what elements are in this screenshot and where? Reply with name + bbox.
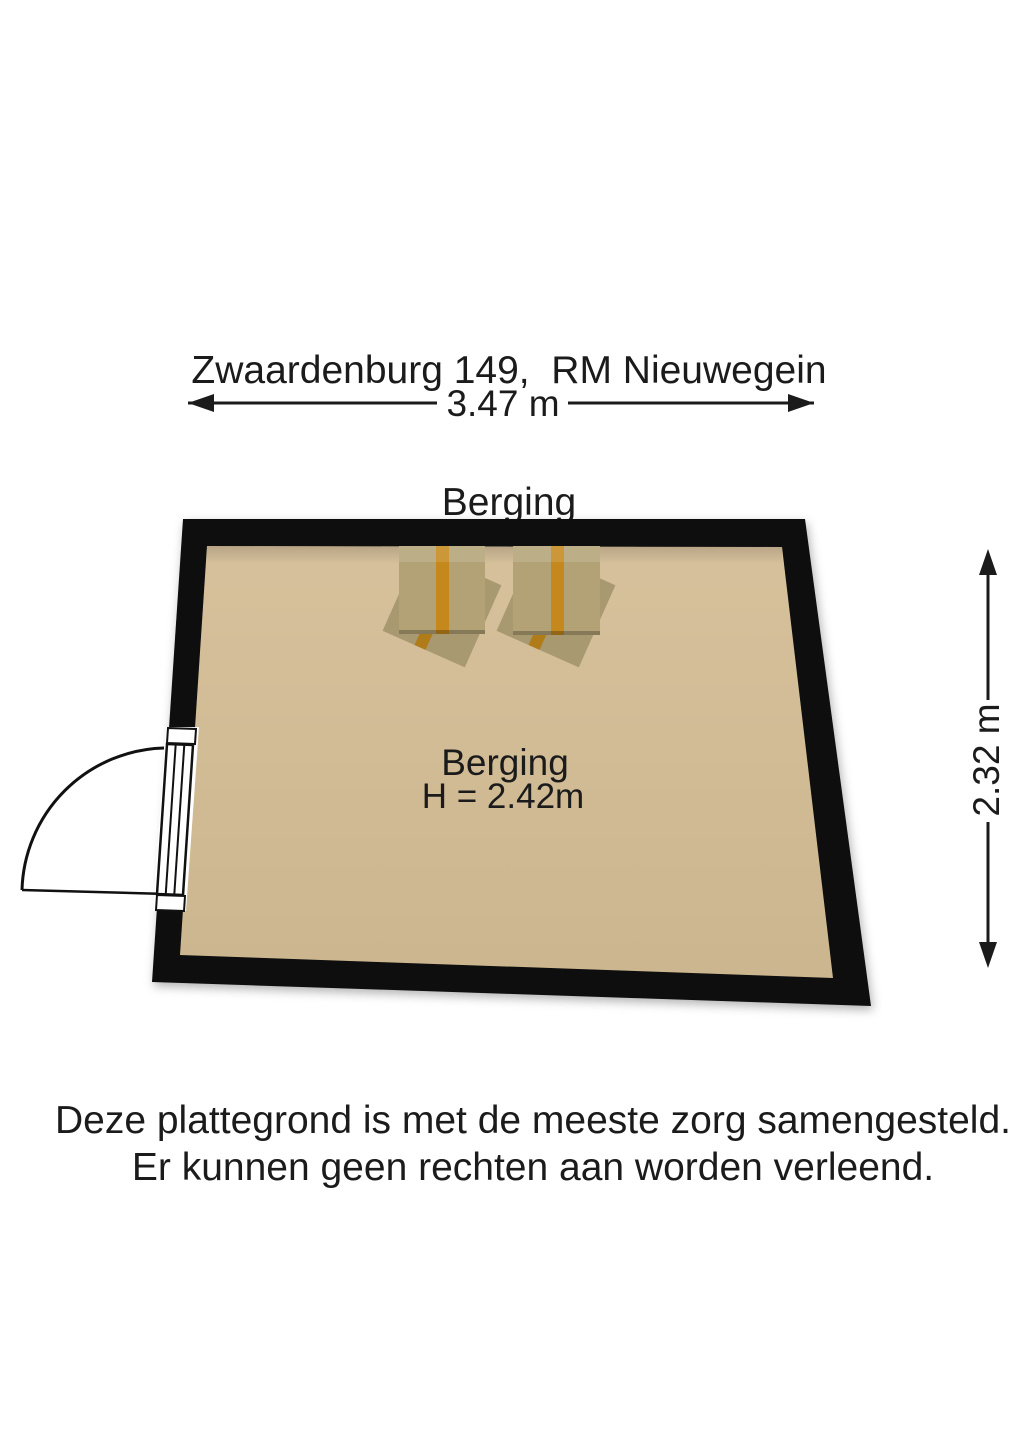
room-ceiling-height-label: H = 2.42m <box>422 777 584 817</box>
height-dimension-label: 2.32 m <box>966 703 1008 816</box>
disclaimer-line2: Er kunnen geen rechten aan worden verlee… <box>24 1144 1018 1191</box>
arrowhead-right-icon <box>788 394 814 412</box>
door-jamb-top <box>167 728 196 744</box>
door-jamb-bottom <box>156 895 185 911</box>
arrowhead-down-icon <box>979 942 997 968</box>
door-swing-arc-icon <box>22 748 164 890</box>
width-dimension-label: 3.47 m <box>446 383 559 425</box>
floor-top-shadow <box>207 546 782 564</box>
arrowhead-left-icon <box>188 394 214 412</box>
disclaimer-line1: Deze plattegrond is met de meeste zorg s… <box>24 1097 1018 1144</box>
floorplan-drawing <box>0 0 1018 1440</box>
door <box>22 727 199 911</box>
floorplan-page: Zwaardenburg 149, RM Nieuwegein Berging <box>0 0 1018 1440</box>
door-leaf-open-line <box>22 890 167 894</box>
disclaimer-block: Deze plattegrond is met de meeste zorg s… <box>24 1097 1018 1191</box>
arrowhead-up-icon <box>979 549 997 575</box>
